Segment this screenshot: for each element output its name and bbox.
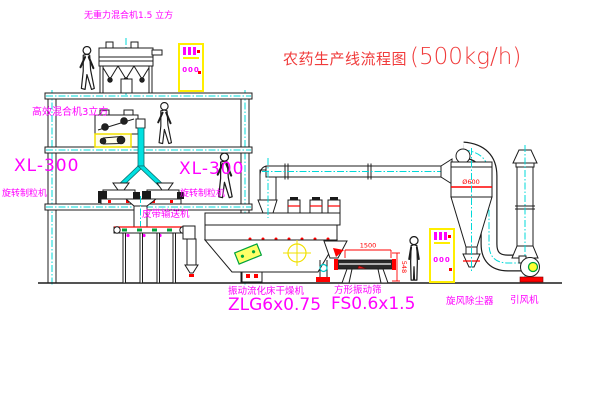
- label-high-efficiency-mixer: 高效混合机3立方: [32, 108, 108, 119]
- flow-diagram-canvas: Ø600: [0, 0, 600, 403]
- high-efficiency-mixer: [95, 110, 145, 168]
- dryer-stub-3: [328, 197, 340, 213]
- label-screen-model: FS0.6x1.5: [331, 296, 415, 314]
- vibrating-screen: 1500 548: [324, 241, 408, 283]
- label-gravity-mixer: 无重力混合机1.5 立方: [84, 12, 173, 21]
- cabinet-indicator-bars: [434, 232, 450, 244]
- screen-height-dimension: 548: [400, 261, 408, 273]
- title-capacity: (500kg/h): [410, 44, 521, 70]
- control-cabinet-right: 000: [429, 228, 455, 283]
- gravity-free-mixer: [99, 38, 162, 96]
- label-dryer-model: ZLG6x0.75: [228, 297, 321, 315]
- title-text: 农药生产线流程图: [283, 48, 407, 69]
- dryer-stub-2: [310, 197, 322, 213]
- cabinet-indicator-light: [198, 71, 201, 74]
- screen-length-dimension: 1500: [360, 242, 377, 250]
- belt-conveyor: [114, 226, 198, 283]
- induced-draft-fan: [519, 256, 543, 282]
- dryer-stub-1: [288, 197, 300, 213]
- cabinet-indicator-light: [449, 268, 452, 271]
- label-granulator-center: 旋转制粒机: [180, 190, 225, 199]
- label-xl300-center: XL-300: [179, 161, 244, 179]
- person-ground: [409, 237, 419, 281]
- cabinet-indicator-light: [197, 50, 200, 53]
- cabinet-readout: 000: [431, 256, 453, 264]
- label-belt-conveyor: 皮带输送机: [142, 210, 190, 220]
- control-cabinet-top: 000: [178, 43, 204, 92]
- person-roof: [80, 47, 94, 90]
- diagram-title: 农药生产线流程图 (500kg/h): [283, 44, 521, 70]
- label-fan: 引风机: [510, 296, 539, 306]
- cabinet-indicator-bars: [183, 47, 199, 59]
- person-floor2: [158, 103, 171, 144]
- label-granulator-left: 旋转制粒机: [2, 190, 47, 199]
- label-cyclone: 旋风除尘器: [446, 297, 494, 307]
- dryer-exhaust-duct: [258, 158, 452, 218]
- label-xl300-left: XL-300: [14, 158, 79, 176]
- cabinet-indicator-light: [448, 235, 451, 238]
